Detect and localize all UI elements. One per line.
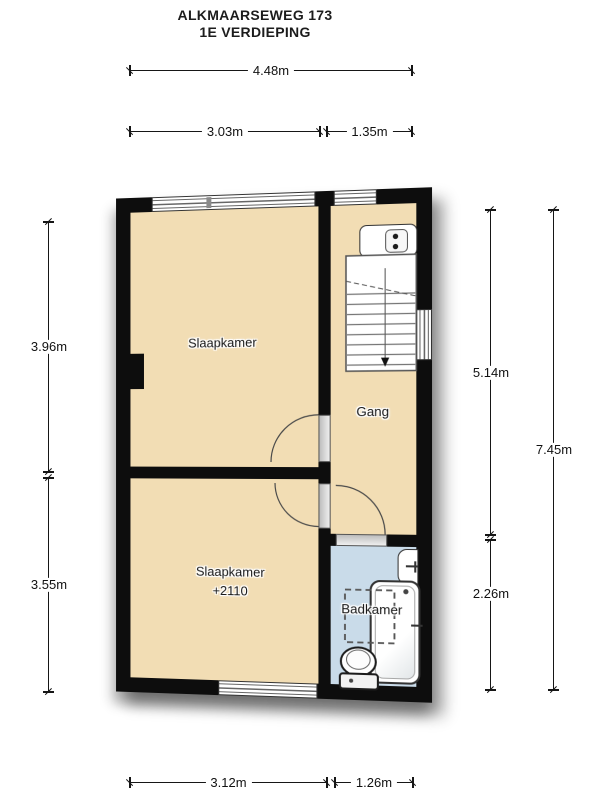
door-bedroom2 bbox=[318, 483, 330, 528]
dim-right-total-label: 7.45m bbox=[531, 443, 577, 457]
washbasin-icon bbox=[359, 223, 417, 257]
window-mullion bbox=[206, 197, 211, 208]
room-label-gang: Gang bbox=[356, 402, 389, 421]
chimney-breast bbox=[130, 354, 144, 389]
dim-left-upper-label: 3.96m bbox=[26, 340, 72, 354]
floorplan-page: ALKMAARSEWEG 173 1E VERDIEPING 4.48m 3.0… bbox=[0, 0, 600, 800]
room-label-badkamer: Badkamer bbox=[341, 599, 402, 620]
dim-bottom-left-label: 3.12m bbox=[205, 776, 251, 790]
dim-bottom-right-label: 1.26m bbox=[351, 776, 397, 790]
wall-bathroom-right bbox=[387, 534, 416, 547]
dim-top-right-label: 1.35m bbox=[346, 125, 392, 139]
room-label-slaapkamer2-name: Slaapkamer bbox=[196, 562, 265, 582]
dim-bottom-right: 1.26m bbox=[335, 782, 413, 783]
window-right bbox=[416, 309, 432, 360]
window-bottom bbox=[218, 680, 317, 698]
door-bathroom bbox=[336, 534, 387, 547]
window-top-right bbox=[334, 189, 377, 206]
dim-right-upper: 5.14m bbox=[490, 210, 491, 535]
washbasin-bowl bbox=[385, 229, 408, 253]
dim-top-left-label: 3.03m bbox=[202, 125, 248, 139]
bathtub-icon bbox=[370, 580, 421, 685]
page-subtitle: 1E VERDIEPING bbox=[199, 24, 310, 40]
dim-bottom-left: 3.12m bbox=[130, 782, 327, 783]
dim-right-lower-label: 2.26m bbox=[468, 587, 514, 601]
dim-left-lower-label: 3.55m bbox=[26, 578, 72, 592]
dim-left-upper: 3.96m bbox=[48, 222, 49, 472]
bathroom-sink-icon bbox=[398, 549, 419, 585]
room-label-slaapkamer2-height: +2110 bbox=[196, 581, 265, 601]
dim-top-total: 4.48m bbox=[130, 70, 412, 71]
dim-top-total-label: 4.48m bbox=[248, 64, 294, 78]
dim-right-total: 7.45m bbox=[553, 210, 554, 690]
door-bedroom1 bbox=[318, 415, 330, 462]
page-title: ALKMAARSEWEG 173 bbox=[178, 7, 333, 23]
dim-left-lower: 3.55m bbox=[48, 478, 49, 692]
wall-center-upper bbox=[318, 206, 330, 415]
wall-bedroom-divider bbox=[130, 467, 318, 480]
room-label-slaapkamer1: Slaapkamer bbox=[188, 333, 257, 353]
wall-center-middle bbox=[318, 462, 330, 483]
dim-top-left: 3.03m bbox=[130, 131, 320, 132]
wall-center-lower bbox=[318, 529, 330, 684]
dim-right-lower: 2.26m bbox=[490, 540, 491, 690]
dim-top-right: 1.35m bbox=[327, 131, 412, 132]
dim-right-upper-label: 5.14m bbox=[468, 365, 514, 379]
floor-plan: Slaapkamer Gang Slaapkamer +2110 Badkame… bbox=[116, 187, 432, 703]
room-label-slaapkamer2: Slaapkamer +2110 bbox=[196, 562, 265, 601]
